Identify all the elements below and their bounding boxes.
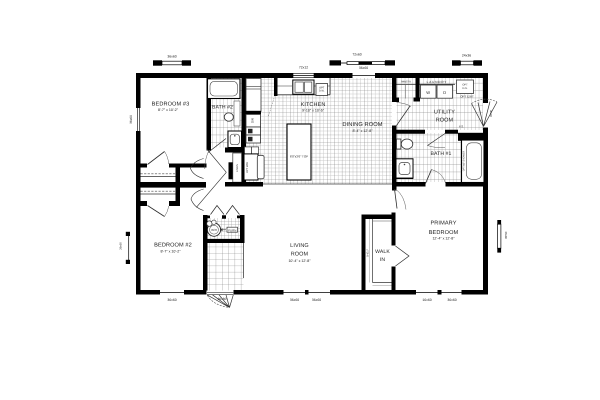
svg-text:ROOM: ROOM xyxy=(291,252,309,258)
svg-text:16x60: 16x60 xyxy=(422,298,431,302)
svg-text:9'-10" x 10'-5": 9'-10" x 10'-5" xyxy=(302,109,325,113)
svg-text:36x80: 36x80 xyxy=(504,231,508,239)
svg-text:D.W.: D.W. xyxy=(319,89,325,92)
svg-text:D: D xyxy=(443,90,446,95)
svg-text:W: W xyxy=(426,90,430,95)
svg-text:6'0"x3'6" TOP: 6'0"x3'6" TOP xyxy=(290,155,308,159)
svg-text:36x60: 36x60 xyxy=(167,298,176,302)
svg-text:KITCHEN: KITCHEN xyxy=(301,102,326,108)
svg-text:ROOM: ROOM xyxy=(436,118,454,124)
svg-text:SHELF: SHELF xyxy=(366,249,369,258)
svg-text:10'-4" x 12'-8": 10'-4" x 12'-8" xyxy=(288,259,311,263)
svg-text:24x36: 24x36 xyxy=(462,53,471,57)
svg-text:PANTRY: PANTRY xyxy=(401,80,412,83)
svg-text:OPT 60" SHOWER: OPT 60" SHOWER xyxy=(462,150,465,171)
svg-text:36x60: 36x60 xyxy=(118,242,122,250)
svg-text:36x80: 36x80 xyxy=(489,110,492,118)
svg-text:PRIMARY: PRIMARY xyxy=(430,221,456,227)
svg-text:BATH #2: BATH #2 xyxy=(212,105,233,111)
svg-text:BEDROOM: BEDROOM xyxy=(429,230,459,236)
svg-text:8'-4" x 12'-8": 8'-4" x 12'-8" xyxy=(352,129,373,133)
svg-text:36x60: 36x60 xyxy=(129,115,133,124)
svg-text:UTILITY: UTILITY xyxy=(434,110,455,116)
svg-text:36x60: 36x60 xyxy=(447,298,456,302)
svg-text:8'-7" x 10'-2": 8'-7" x 10'-2" xyxy=(158,108,179,112)
svg-text:OPT EXIT: OPT EXIT xyxy=(460,95,474,99)
svg-text:36x60: 36x60 xyxy=(359,66,368,70)
svg-text:DW: DW xyxy=(251,118,255,123)
svg-text:DINING ROOM: DINING ROOM xyxy=(342,122,382,128)
svg-text:72x12: 72x12 xyxy=(299,66,308,70)
svg-text:W/H: W/H xyxy=(211,228,217,232)
svg-text:LINEN: LINEN xyxy=(236,164,239,172)
svg-text:WALK: WALK xyxy=(375,249,390,255)
svg-text:36x60: 36x60 xyxy=(312,298,321,302)
svg-text:LIVING: LIVING xyxy=(290,243,309,249)
svg-text:D.S.: D.S. xyxy=(462,87,467,90)
svg-text:BATH #1: BATH #1 xyxy=(431,151,452,157)
svg-text:36x60: 36x60 xyxy=(290,298,299,302)
svg-text:8'-7" x 10'-2": 8'-7" x 10'-2" xyxy=(160,250,181,254)
svg-text:LAUNDRY: LAUNDRY xyxy=(427,80,448,84)
svg-text:IN: IN xyxy=(380,257,386,263)
svg-text:36x80: 36x80 xyxy=(218,297,227,301)
svg-text:OPT W/D: OPT W/D xyxy=(246,162,249,173)
svg-text:BEDROOM #2: BEDROOM #2 xyxy=(154,243,192,249)
svg-text:72x60: 72x60 xyxy=(352,52,361,56)
svg-text:FURN: FURN xyxy=(228,228,236,232)
svg-text:12'-4" x 12'-8": 12'-4" x 12'-8" xyxy=(432,236,455,240)
svg-text:F.S.: F.S. xyxy=(459,125,464,129)
svg-text:36x60: 36x60 xyxy=(167,55,176,59)
svg-text:BEDROOM #3: BEDROOM #3 xyxy=(152,102,190,108)
